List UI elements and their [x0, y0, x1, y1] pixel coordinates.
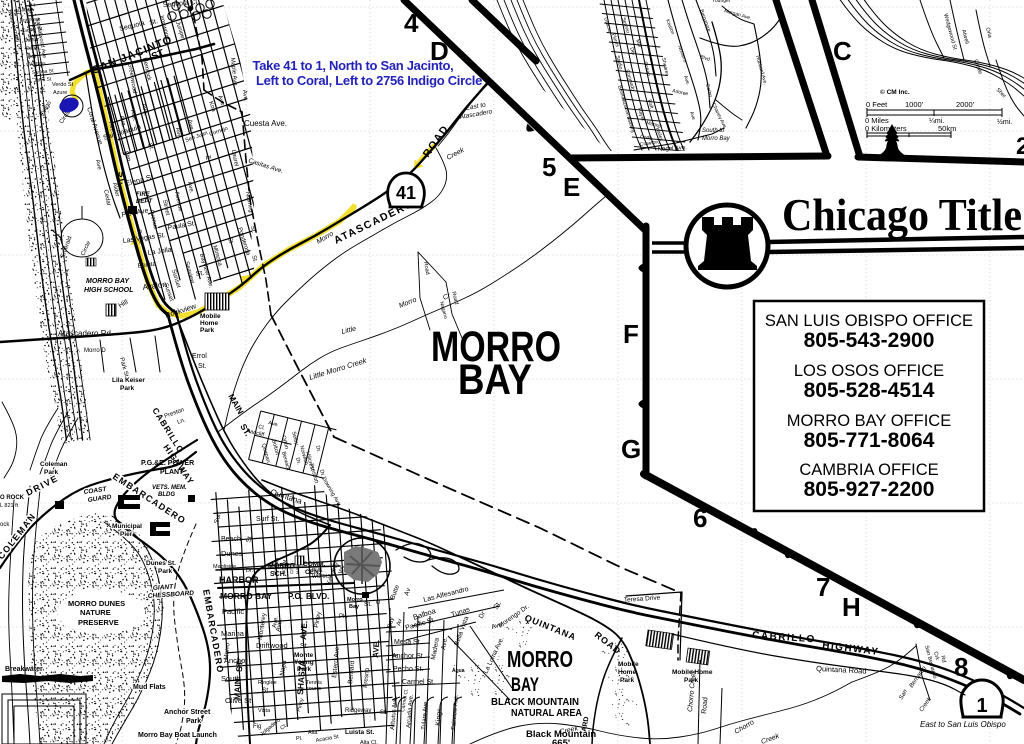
svg-text:COMM.: COMM.: [303, 561, 326, 568]
svg-text:Park: Park: [44, 469, 58, 476]
svg-text:BLACK MOUNTAIN: BLACK MOUNTAIN: [491, 697, 579, 708]
svg-text:Pl.: Pl.: [296, 736, 303, 742]
svg-text:Mud Flats: Mud Flats: [133, 684, 166, 691]
svg-text:CAMBRIA OFFICE: CAMBRIA OFFICE: [799, 461, 938, 479]
svg-text:St.: St.: [364, 601, 372, 608]
svg-text:BLDG: BLDG: [158, 492, 175, 498]
svg-text:½mi.: ½mi.: [997, 118, 1012, 126]
svg-text:Verdo St: Verdo St: [52, 82, 74, 88]
svg-text:Ridgeway: Ridgeway: [345, 708, 371, 714]
svg-text:Bay: Bay: [349, 604, 360, 610]
svg-text:F: F: [623, 319, 639, 349]
svg-text:Park: Park: [200, 327, 214, 334]
svg-text:Ave.: Ave.: [241, 90, 248, 103]
svg-text:2000': 2000': [956, 100, 975, 109]
svg-text:© CM Inc.: © CM Inc.: [880, 88, 910, 96]
svg-text:Monte: Monte: [294, 652, 314, 659]
svg-text:Magliside: Magliside: [213, 564, 236, 570]
svg-text:AVE.: AVE.: [298, 620, 309, 640]
svg-text:Alta Cl.: Alta Cl.: [360, 740, 378, 744]
svg-text:MORRO: MORRO: [507, 646, 573, 672]
svg-text:Take 41 to 1, North to San Jac: Take 41 to 1, North to San Jacinto,: [253, 58, 454, 73]
svg-text:Dr.: Dr.: [246, 568, 254, 574]
svg-text:MORRO DUNES: MORRO DUNES: [68, 599, 125, 608]
svg-text:H: H: [842, 592, 861, 622]
svg-text:7: 7: [816, 572, 830, 602]
svg-text:Morro: Morro: [347, 597, 363, 603]
svg-text:MAIN: MAIN: [232, 678, 243, 700]
svg-text:Park: Park: [120, 385, 134, 392]
svg-text:Home: Home: [200, 320, 218, 327]
svg-text:Pk.: Pk.: [339, 614, 348, 620]
svg-text:LOS OSOS OFFICE: LOS OSOS OFFICE: [794, 362, 944, 380]
svg-text:NATURAL AREA: NATURAL AREA: [511, 708, 582, 719]
svg-text:Fig: Fig: [253, 724, 261, 730]
svg-text:805-927-2200: 805-927-2200: [804, 478, 935, 501]
svg-text:Mobile: Mobile: [200, 313, 221, 320]
svg-text:HARBOR: HARBOR: [219, 575, 259, 585]
svg-text:Bali: Bali: [28, 53, 37, 60]
svg-text:St.: St.: [262, 687, 270, 694]
svg-text:Dunes: Dunes: [221, 549, 243, 558]
svg-text:Younger: Younger: [712, 0, 731, 4]
svg-text:6: 6: [693, 503, 707, 533]
svg-text:50km: 50km: [938, 124, 956, 133]
svg-text:C: C: [833, 36, 852, 66]
svg-text:BAY: BAY: [458, 356, 532, 404]
svg-text:Pier: Pier: [120, 531, 133, 538]
svg-text:805-771-8064: 805-771-8064: [804, 429, 935, 452]
svg-text:MORRO BAY: MORRO BAY: [86, 278, 130, 285]
svg-text:Dunes St.: Dunes St.: [146, 560, 176, 567]
svg-text:0 Feet: 0 Feet: [866, 100, 888, 109]
svg-text:L 821 ft: L 821 ft: [0, 503, 19, 509]
svg-text:East to San Luis Obispo: East to San Luis Obispo: [920, 720, 1006, 729]
svg-text:Carmel St.: Carmel St.: [402, 679, 435, 686]
svg-text:PRESERVE: PRESERVE: [78, 618, 119, 627]
svg-text:Luista St.: Luista St.: [345, 729, 374, 736]
svg-text:Coleman: Coleman: [40, 461, 67, 468]
svg-text:1: 1: [976, 695, 987, 717]
svg-text:Alta: Alta: [308, 730, 318, 736]
svg-text:D: D: [430, 36, 449, 66]
svg-text:P.O.: P.O.: [288, 592, 303, 601]
svg-text:Road: Road: [701, 697, 709, 714]
svg-text:VETS. MEM.: VETS. MEM.: [152, 485, 187, 491]
svg-text:Pacific: Pacific: [222, 607, 244, 616]
svg-text:Lila Keiser: Lila Keiser: [112, 377, 145, 384]
svg-text:Morro D: Morro D: [84, 348, 106, 354]
svg-text:courts: courts: [306, 686, 321, 692]
svg-text:NATURE: NATURE: [80, 608, 111, 617]
svg-text:Park: Park: [158, 568, 172, 575]
svg-text:MORRO BAY: MORRO BAY: [220, 591, 272, 601]
svg-text:St.: St.: [198, 363, 207, 370]
svg-text:Atascadero Rd.: Atascadero Rd.: [58, 329, 113, 338]
svg-text:Breakwater: Breakwater: [5, 666, 43, 673]
svg-text:O ROCK: O ROCK: [0, 495, 25, 501]
svg-text:Marina: Marina: [221, 629, 245, 638]
svg-text:Park: Park: [297, 666, 311, 673]
svg-text:WORKS: WORKS: [312, 574, 332, 580]
svg-text:805-528-4514: 805-528-4514: [804, 379, 935, 402]
svg-text:Beach: Beach: [221, 536, 241, 543]
svg-text:Left to Coral, Left to 2756 In: Left to Coral, Left to 2756 Indigo Circl…: [256, 73, 482, 88]
svg-text:South to: South to: [702, 128, 725, 134]
svg-text:Driftwood: Driftwood: [256, 641, 288, 650]
svg-text:0 Kilometers: 0 Kilometers: [865, 124, 907, 133]
svg-text:Mesa St.: Mesa St.: [394, 639, 422, 646]
svg-text:St.: St.: [300, 643, 309, 650]
svg-text:Young: Young: [294, 659, 314, 666]
svg-text:AVE.: AVE.: [371, 639, 381, 658]
svg-text:805-543-2900: 805-543-2900: [804, 329, 935, 352]
svg-text:O: O: [376, 600, 381, 606]
svg-text:Park: Park: [186, 718, 201, 725]
svg-text:BLVD.: BLVD.: [306, 592, 329, 601]
svg-text:Chicago Title: Chicago Title: [782, 189, 1022, 240]
svg-text:Cuesta Ave.: Cuesta Ave.: [244, 119, 287, 128]
svg-text:5: 5: [542, 152, 556, 182]
svg-text:Surf St.: Surf St.: [256, 516, 279, 523]
svg-text:Azure: Azure: [53, 90, 67, 96]
svg-text:ST.: ST.: [234, 659, 244, 672]
svg-text:2: 2: [1016, 133, 1024, 160]
svg-text:1000': 1000': [905, 100, 924, 109]
svg-text:Errol: Errol: [192, 353, 207, 360]
svg-text:Anchor Street: Anchor Street: [164, 709, 211, 716]
svg-text:Pecho St.: Pecho St.: [393, 666, 423, 673]
svg-text:FIRE: FIRE: [136, 192, 151, 198]
svg-text:St.: St.: [195, 270, 205, 278]
svg-text:DEPT: DEPT: [136, 199, 153, 205]
svg-text:41: 41: [396, 183, 416, 203]
svg-text:Morro Bay Boat Launch: Morro Bay Boat Launch: [138, 732, 217, 739]
svg-text:Morro Bay: Morro Bay: [702, 136, 731, 142]
svg-text:E: E: [563, 172, 580, 202]
svg-text:SAN LUIS OBISPO OFFICE: SAN LUIS OBISPO OFFICE: [765, 312, 973, 330]
svg-text:Capri: Capri: [26, 45, 38, 52]
svg-text:665': 665': [552, 738, 570, 744]
svg-text:CITY: CITY: [289, 563, 295, 574]
svg-text:Vista: Vista: [258, 708, 271, 714]
svg-text:ock: ock: [0, 522, 10, 528]
svg-text:Anchor St: Anchor St: [392, 653, 423, 660]
svg-text:MORRO BAY OFFICE: MORRO BAY OFFICE: [787, 412, 951, 430]
svg-text:G: G: [621, 434, 641, 464]
svg-text:4: 4: [404, 8, 419, 38]
svg-text:HIGH SCHOOL: HIGH SCHOOL: [84, 287, 133, 294]
svg-text:Municipal: Municipal: [112, 523, 142, 530]
svg-text:Ringlee: Ringlee: [258, 680, 277, 686]
